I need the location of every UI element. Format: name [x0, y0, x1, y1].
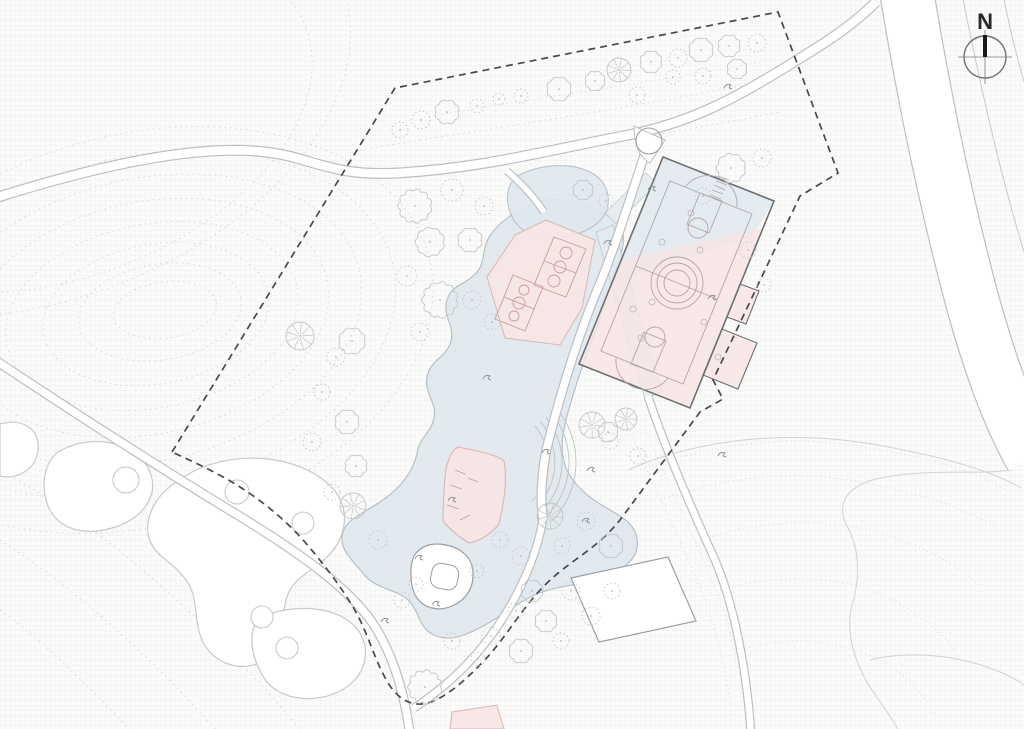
north-arrow: N: [958, 9, 1012, 84]
compass-needle: [983, 35, 987, 57]
meadow-outline-layer: [628, 437, 1024, 729]
site-plan-canvas: N: [0, 0, 1024, 729]
compass-label: N: [977, 9, 993, 34]
site-plan-page: N: [0, 0, 1024, 729]
